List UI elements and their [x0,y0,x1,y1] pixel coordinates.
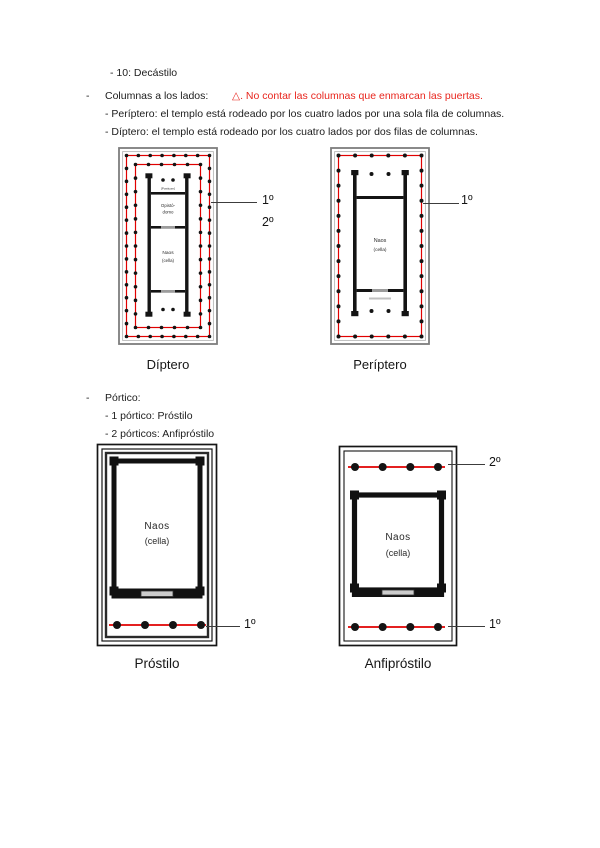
anfiprostilo-annotation-line-bottom [448,626,485,627]
prostilo-annotation-1: 1º [244,617,256,631]
column-dot [337,259,341,263]
column-dot [134,163,138,167]
column-dot [147,163,151,167]
column-dot [137,335,141,339]
column-dot [337,214,341,218]
column-dot [134,299,138,303]
column-dot [199,299,203,303]
anfiprostilo-annotation-2: 2º [489,455,501,469]
column-dot [208,257,212,261]
door-threshold [382,590,414,595]
column-dot [148,335,152,339]
column-dot [208,270,212,274]
column-dot [387,172,391,176]
column-dot [134,203,138,207]
column-dot [160,335,164,339]
column-dot [125,192,129,196]
notes-page: { "colors": { "warning_red": "#e8251d", … [0,0,600,848]
column-dot [370,154,374,158]
column-dot [403,335,407,339]
column-dot [208,244,212,248]
column-dot [199,285,203,289]
anfiprostilo-annotation-line-top [448,464,485,465]
column-dot [172,154,176,158]
column-dot [134,190,138,194]
column-dot [134,258,138,262]
column-dot [420,335,424,339]
column-dot [184,154,188,158]
naos-label: Naos [144,521,169,532]
anfiprostilo-annotation-1: 1º [489,617,501,631]
column-dot [353,335,357,339]
column-dot [420,289,424,293]
column-dot [125,296,129,300]
note-periptero-def: - Períptero: el templo está rodeado por … [105,107,504,121]
column-dot [420,184,424,188]
column-dot [125,270,129,274]
column-dot [199,163,203,167]
anfiprostilo-floor-plan: Naos (cella) [338,445,458,647]
column-dot [160,154,164,158]
column-dot [434,623,442,631]
column-dot [353,154,357,158]
door-opening [161,290,175,293]
column-dot [370,172,374,176]
column-dot [196,335,200,339]
column-dot [125,231,129,235]
column-dot [337,319,341,323]
column-dot [379,623,387,631]
column-dot [406,623,414,631]
portico-item-prostilo: - 1 pórtico: Próstilo [105,409,193,423]
column-dot [208,335,212,339]
diptero-annotation-1: 1º [262,193,274,207]
column-dot [351,463,359,471]
column-dot [208,296,212,300]
column-dot [420,229,424,233]
column-dot [160,326,164,330]
column-dot [141,621,149,629]
column-dot [125,154,129,158]
column-dot [186,326,190,330]
column-dot [125,244,129,248]
portico-item-anfiprostilo: - 2 pórticos: Anfipróstilo [105,427,214,441]
column-dot [199,217,203,221]
column-dot [208,154,212,158]
opistodomo-label: domo [163,210,175,215]
column-dot [434,463,442,471]
column-dot [160,163,164,167]
column-dot [199,258,203,262]
column-dot [337,335,341,339]
column-dot [134,312,138,316]
column-dot [337,229,341,233]
periptero-caption: Períptero [330,357,430,372]
naos-label: Naos [385,532,410,543]
column-dot [137,154,141,158]
stylobate-outer [119,148,217,344]
column-dot [125,309,129,313]
column-dot [173,326,177,330]
posticum-label: [Posticum] [161,187,175,191]
door-opening [161,226,175,229]
column-dot [337,154,341,158]
column-dot [337,274,341,278]
column-dot [386,335,390,339]
column-dot [161,308,165,312]
column-dot [134,231,138,235]
column-dot [337,184,341,188]
column-dot [113,621,121,629]
column-dot [197,621,205,629]
column-dot [208,322,212,326]
stylobate-outer [331,148,429,344]
column-dot [208,218,212,222]
cella-label: (cella) [145,536,170,546]
column-dot [370,335,374,339]
column-dot [420,319,424,323]
prostilo-floor-plan: Naos (cella) [96,443,218,647]
column-dot [208,309,212,313]
column-dot [134,285,138,289]
column-dot [337,169,341,173]
column-dot [351,623,359,631]
portico-title: Pórtico: [105,391,141,405]
note-decastilo: - 10: Decástilo [110,66,177,80]
column-dot [199,312,203,316]
column-dot [420,274,424,278]
column-dot [125,335,129,339]
column-dot [420,304,424,308]
column-dot [403,154,407,158]
periptero-floor-plan: Naos (cella) [330,147,430,345]
note-columnas-label: Columnas a los lados: [105,89,208,103]
naos-label: Naos [374,238,387,244]
column-dot [173,163,177,167]
column-dot [125,218,129,222]
warning-text: △. No contar las columnas que enmarcan l… [232,89,483,103]
column-dot [125,205,129,209]
column-dot [370,309,374,313]
column-dot [337,199,341,203]
bullet-dash: - [86,391,90,405]
column-dot [125,180,129,184]
bullet-dash: - [86,89,90,103]
column-dot [196,154,200,158]
column-dot [337,304,341,308]
anfiprostilo-caption: Anfipróstilo [338,656,458,671]
cella-label: (cella) [162,258,174,263]
naos-label: Naos [162,250,174,256]
cella-label: (cella) [373,247,386,253]
column-dot [134,217,138,221]
column-dot [134,271,138,275]
column-dot [208,283,212,287]
column-dot [199,203,203,207]
column-dot [171,308,175,312]
column-dot [386,154,390,158]
prostilo-caption: Próstilo [96,656,218,671]
column-dot [125,283,129,287]
column-dot [337,244,341,248]
column-dot [125,257,129,261]
column-dot [169,621,177,629]
note-diptero-def: - Díptero: el templo está rodeado por lo… [105,125,478,139]
column-dot [199,326,203,330]
column-dot [184,335,188,339]
column-dot [134,176,138,180]
periptero-annotation-line [423,203,459,204]
column-dot [199,176,203,180]
diptero-floor-plan: [Posticum] Opistó- domo Naos (cella) [118,147,218,345]
column-dot [337,289,341,293]
column-dot [148,154,152,158]
column-dot [199,231,203,235]
column-dot [125,167,129,171]
column-dot [208,167,212,171]
prostilo-annotation-line [206,626,240,627]
threshold [369,298,391,300]
opistodomo-label: Opistó- [161,203,176,208]
column-dot [171,178,175,182]
column-dot [387,309,391,313]
diptero-annotation-2: 2º [262,215,274,229]
door-threshold [141,591,173,597]
cella-label: (cella) [386,548,411,558]
column-dot [186,163,190,167]
column-dot [420,259,424,263]
column-dot [199,244,203,248]
column-dot [420,169,424,173]
column-dot [420,214,424,218]
column-dot [208,180,212,184]
column-dot [172,335,176,339]
column-dot [161,178,165,182]
column-dot [208,231,212,235]
column-dot [134,326,138,330]
column-dot [420,244,424,248]
column-dot [379,463,387,471]
column-dot [199,190,203,194]
column-dot [134,244,138,248]
column-dot [208,192,212,196]
column-dot [208,205,212,209]
column-dot [125,322,129,326]
column-dot [420,154,424,158]
periptero-annotation-1: 1º [461,193,473,207]
diptero-caption: Díptero [118,357,218,372]
column-dot [406,463,414,471]
column-dot [199,271,203,275]
diptero-annotation-line [211,202,257,203]
door-opening [372,289,388,292]
column-dot [147,326,151,330]
